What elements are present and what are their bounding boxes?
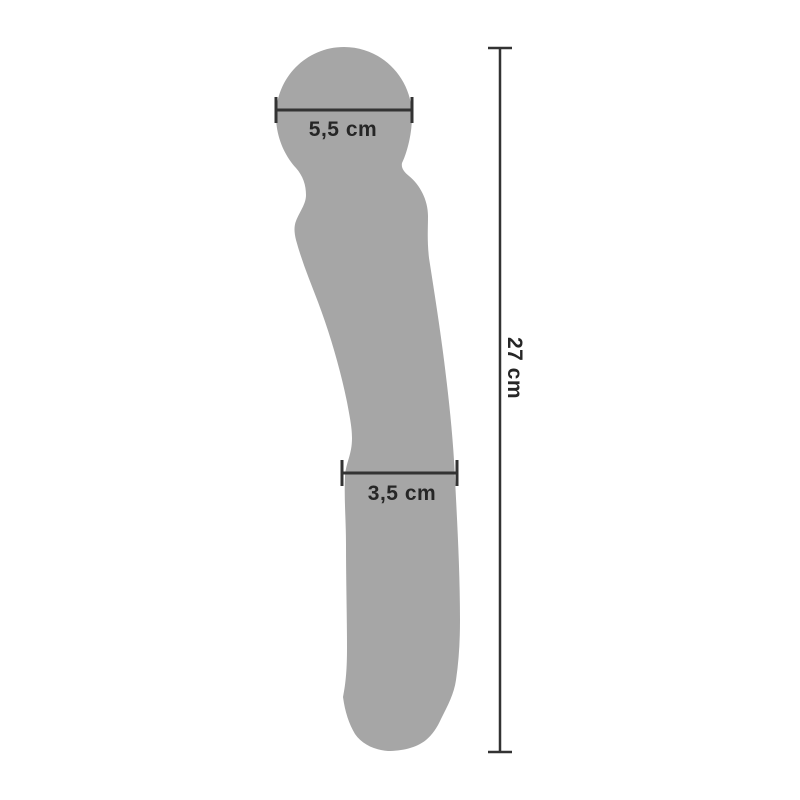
head-width-label: 5,5 cm (309, 118, 377, 141)
body-width-label: 3,5 cm (368, 482, 436, 505)
total-length-label: 27 cm (503, 337, 526, 399)
total-length-dimension: 27 cm (488, 48, 526, 752)
product-silhouette (276, 47, 460, 751)
product-dimension-diagram: 5,5 cm 3,5 cm 27 cm (0, 0, 800, 800)
diagram-canvas: 5,5 cm 3,5 cm 27 cm (0, 0, 800, 800)
